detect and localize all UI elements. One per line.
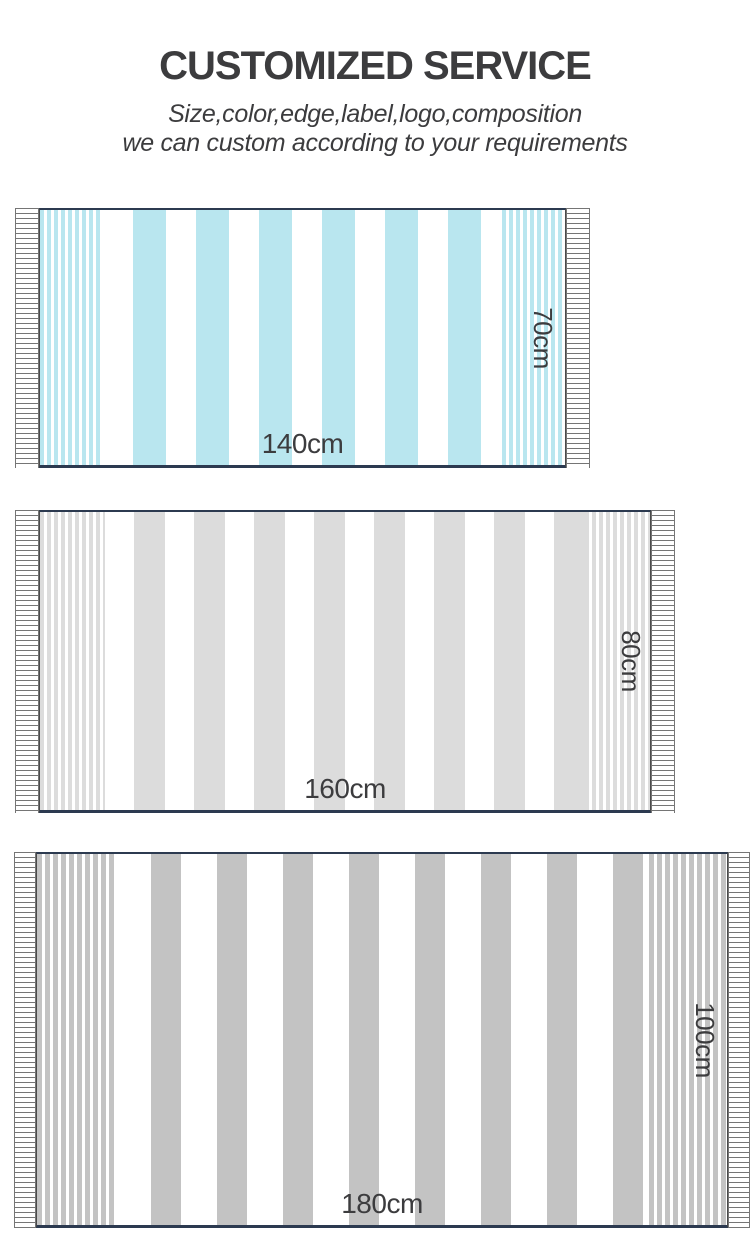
- height-label: 100cm: [690, 1002, 721, 1078]
- page-subtitle: Size,color,edge,label,logo,composition w…: [0, 100, 750, 158]
- fringe-left: [14, 852, 36, 1228]
- width-label: 140cm: [262, 428, 344, 460]
- fringe-left: [15, 208, 39, 468]
- thin-stripes-left: [40, 512, 105, 810]
- towel-160x80: 160cm 80cm: [15, 510, 675, 813]
- subtitle-line-2: we can custom according to your requirem…: [0, 129, 750, 158]
- customized-service-page: CUSTOMIZED SERVICE Size,color,edge,label…: [0, 0, 750, 1254]
- wide-stripes: [105, 512, 585, 810]
- towel-body: 160cm 80cm: [39, 510, 651, 813]
- fringe-right: [651, 510, 675, 813]
- width-label: 180cm: [341, 1188, 423, 1220]
- thin-stripes-left: [37, 854, 115, 1225]
- page-header: CUSTOMIZED SERVICE Size,color,edge,label…: [0, 44, 750, 158]
- wide-stripes: [103, 210, 502, 465]
- width-label: 160cm: [304, 773, 386, 805]
- height-label: 80cm: [616, 630, 647, 692]
- thin-stripes-left: [40, 210, 103, 465]
- page-title: CUSTOMIZED SERVICE: [0, 44, 750, 88]
- fringe-right: [566, 208, 590, 468]
- fringe-right: [728, 852, 750, 1228]
- wide-stripes: [115, 854, 649, 1225]
- height-label: 70cm: [528, 307, 559, 369]
- towel-body: 140cm 70cm: [39, 208, 566, 468]
- towel-180x100: 180cm 100cm: [14, 852, 750, 1228]
- subtitle-line-1: Size,color,edge,label,logo,composition: [0, 100, 750, 129]
- towel-body: 180cm 100cm: [36, 852, 728, 1228]
- fringe-left: [15, 510, 39, 813]
- towel-140x70: 140cm 70cm: [15, 208, 590, 468]
